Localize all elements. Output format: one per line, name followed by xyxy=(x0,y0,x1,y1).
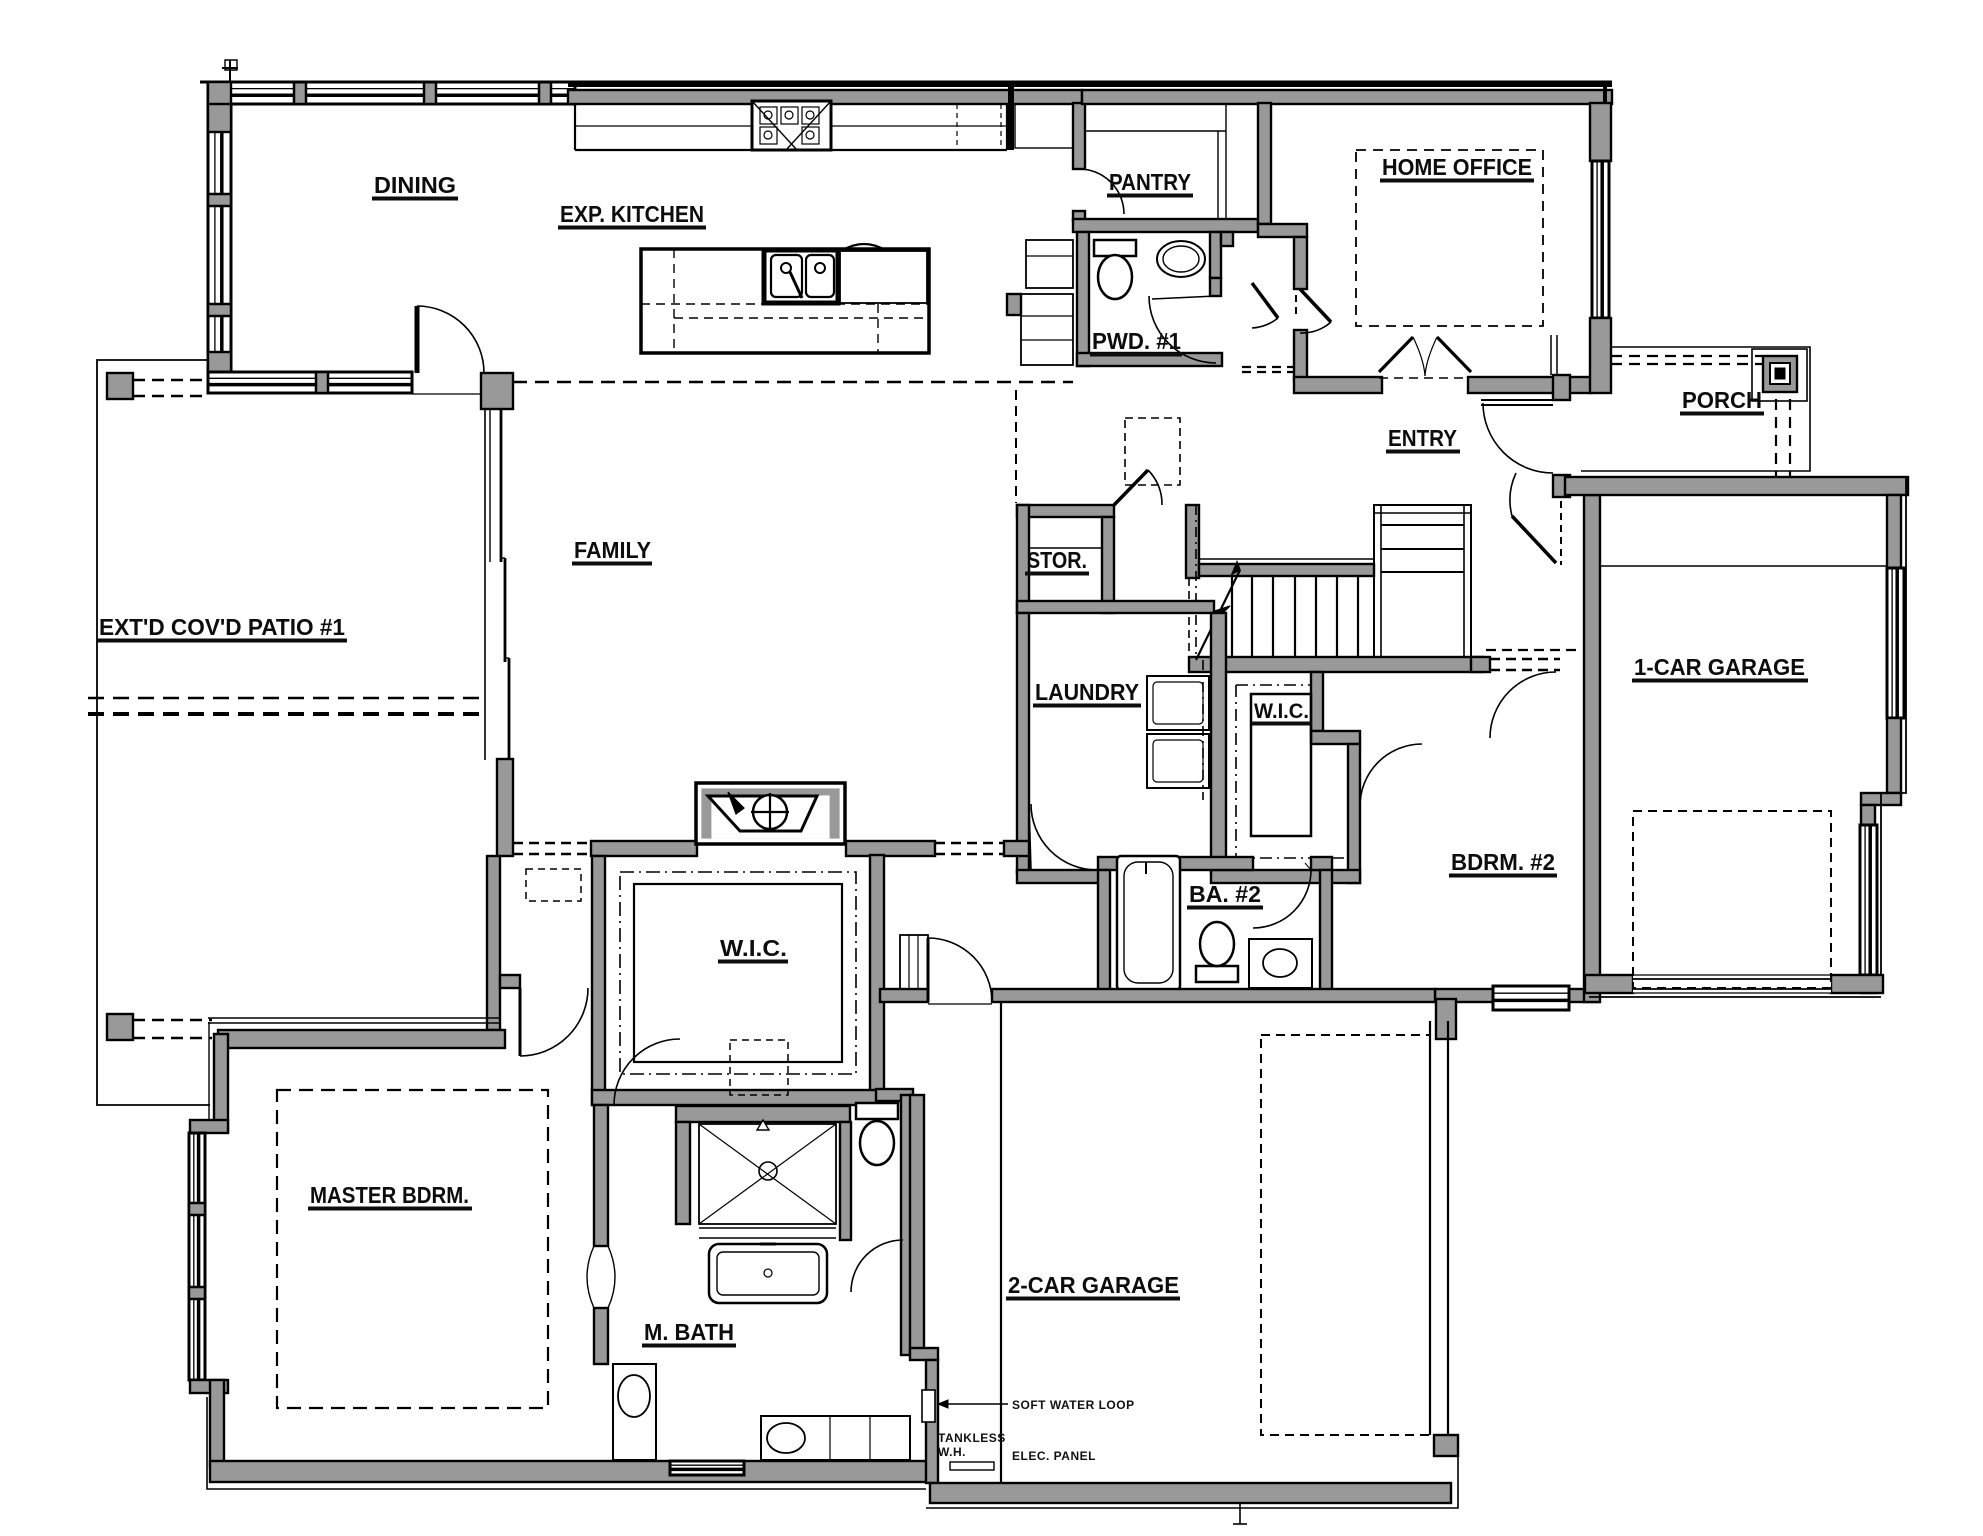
svg-text:MASTER BDRM.: MASTER BDRM. xyxy=(310,1182,469,1208)
svg-text:PORCH: PORCH xyxy=(1682,387,1762,413)
svg-text:M. BATH: M. BATH xyxy=(644,1319,734,1345)
svg-text:W.I.C.: W.I.C. xyxy=(1254,700,1309,723)
svg-text:EXT'D COV'D PATIO #1: EXT'D COV'D PATIO #1 xyxy=(99,614,345,640)
svg-text:SOFT WATER LOOP: SOFT WATER LOOP xyxy=(1012,1398,1135,1412)
svg-text:FAMILY: FAMILY xyxy=(574,537,651,563)
svg-text:ENTRY: ENTRY xyxy=(1388,425,1457,451)
svg-text:W.I.C.: W.I.C. xyxy=(720,935,787,961)
svg-text:BDRM. #2: BDRM. #2 xyxy=(1451,849,1555,875)
svg-text:PWD. #1: PWD. #1 xyxy=(1092,328,1181,354)
svg-text:BA. #2: BA. #2 xyxy=(1189,881,1261,907)
svg-text:TANKLESS: TANKLESS xyxy=(938,1431,1006,1445)
svg-text:1-CAR GARAGE: 1-CAR GARAGE xyxy=(1634,654,1805,680)
svg-text:EXP. KITCHEN: EXP. KITCHEN xyxy=(560,201,704,227)
svg-text:STOR.: STOR. xyxy=(1027,547,1087,573)
svg-text:LAUNDRY: LAUNDRY xyxy=(1035,679,1139,705)
svg-text:ELEC. PANEL: ELEC. PANEL xyxy=(1012,1449,1096,1463)
svg-text:W.H.: W.H. xyxy=(938,1445,966,1459)
svg-text:2-CAR GARAGE: 2-CAR GARAGE xyxy=(1008,1272,1179,1298)
svg-text:HOME OFFICE: HOME OFFICE xyxy=(1382,154,1532,180)
svg-text:PANTRY: PANTRY xyxy=(1109,169,1191,195)
svg-text:DINING: DINING xyxy=(374,172,456,198)
